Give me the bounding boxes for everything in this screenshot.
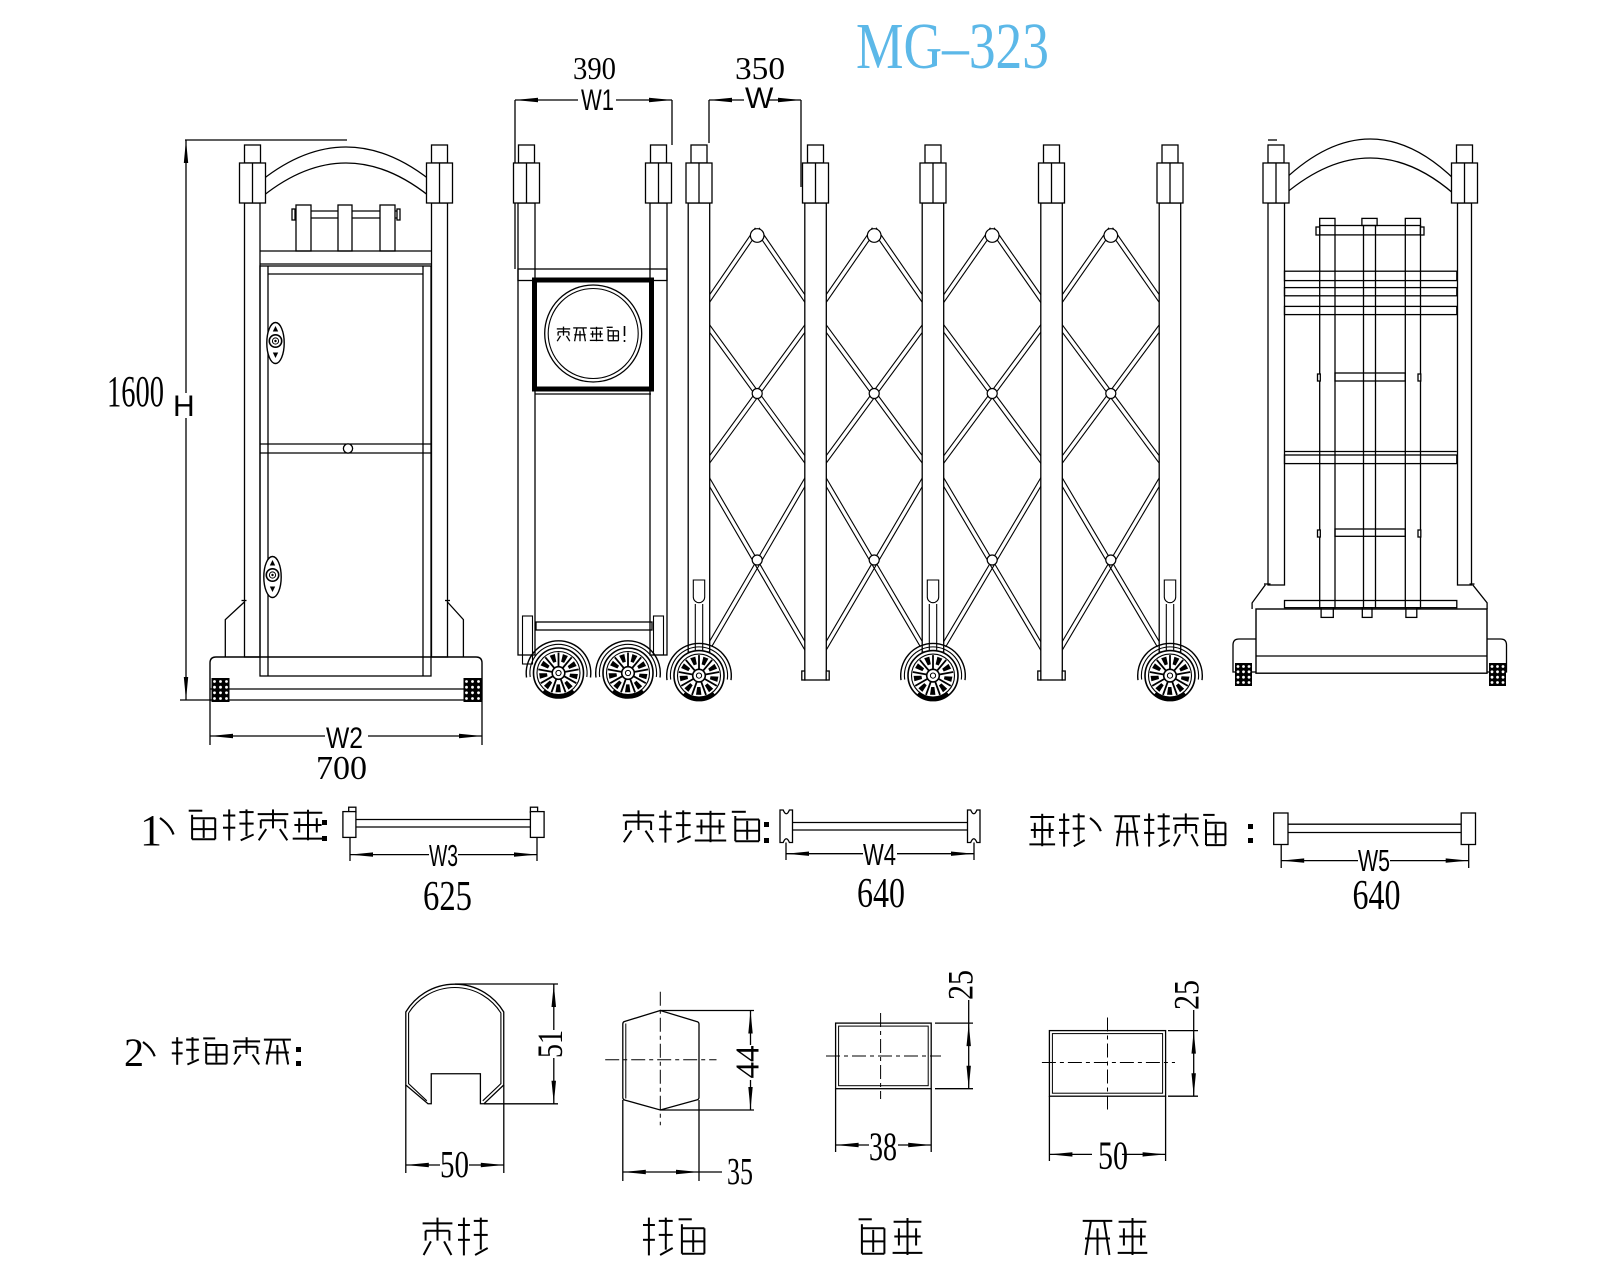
svg-text:W: W — [745, 82, 774, 115]
svg-text:H: H — [173, 390, 195, 423]
svg-text:50: 50 — [440, 1144, 469, 1186]
svg-text:44: 44 — [729, 1046, 766, 1079]
svg-text:350: 350 — [735, 50, 785, 86]
svg-text:W1: W1 — [581, 84, 614, 117]
svg-text:640: 640 — [857, 871, 905, 917]
svg-text:390: 390 — [573, 50, 616, 86]
svg-text:1600: 1600 — [107, 367, 164, 416]
svg-text:W4: W4 — [863, 837, 896, 872]
svg-text:640: 640 — [1353, 873, 1401, 919]
svg-text:625: 625 — [423, 874, 472, 920]
svg-text:38: 38 — [869, 1124, 897, 1169]
svg-text:1: 1 — [140, 806, 162, 855]
svg-text:51: 51 — [530, 1030, 570, 1058]
svg-text:700: 700 — [316, 750, 367, 787]
svg-text:W3: W3 — [429, 838, 458, 873]
svg-text:35: 35 — [727, 1151, 753, 1193]
svg-text:25: 25 — [1166, 980, 1206, 1010]
svg-text:2: 2 — [124, 1030, 144, 1075]
svg-text:25: 25 — [940, 970, 980, 1000]
svg-text:MG–323: MG–323 — [856, 10, 1049, 83]
svg-text:50: 50 — [1098, 1133, 1128, 1178]
